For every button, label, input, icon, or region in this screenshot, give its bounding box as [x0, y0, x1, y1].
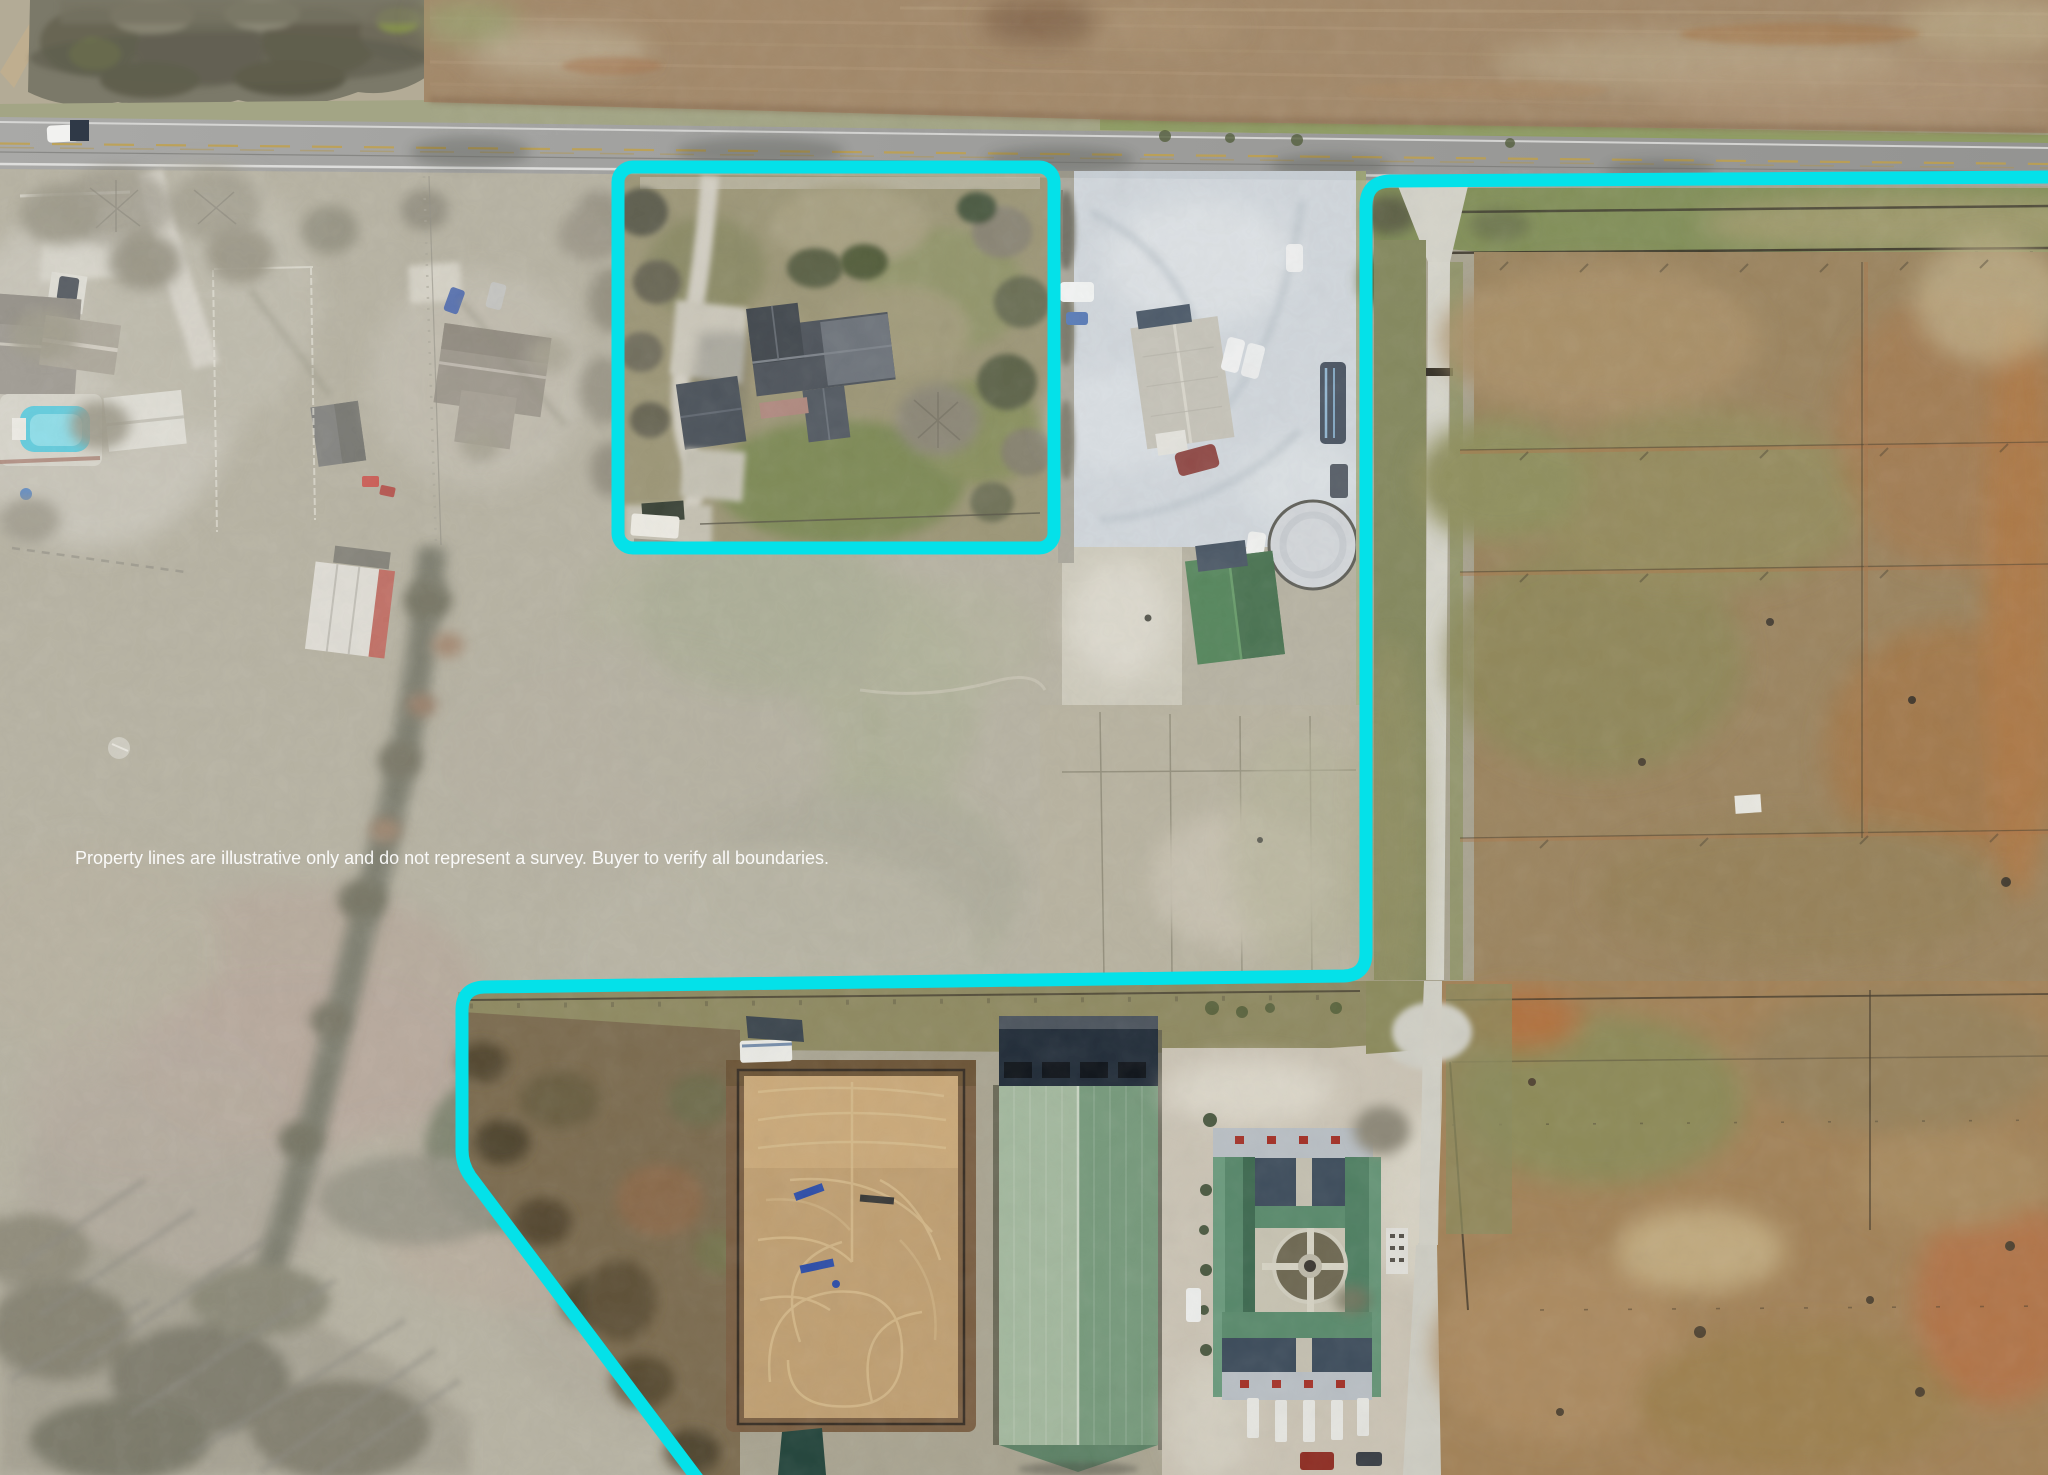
svg-text:Property lines are illustrativ: Property lines are illustrative only and…: [75, 848, 829, 868]
